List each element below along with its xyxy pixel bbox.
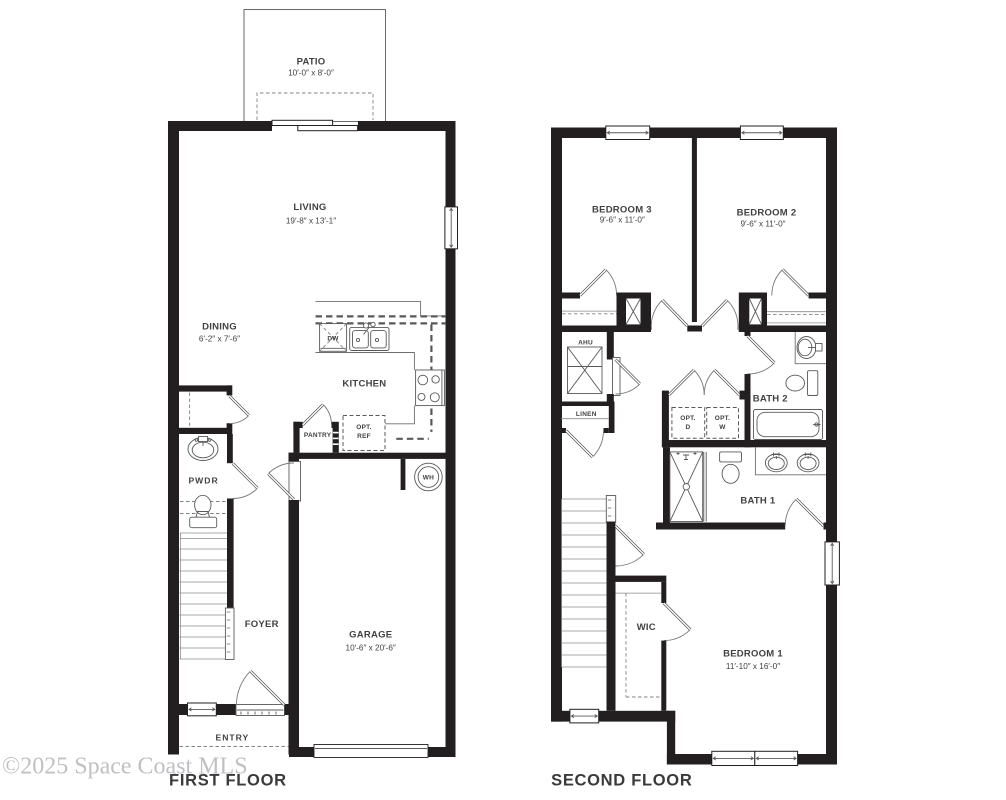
svg-text:OPT.: OPT.	[715, 415, 730, 422]
svg-text:PATIO: PATIO	[297, 57, 326, 68]
svg-text:DINING: DINING	[202, 322, 237, 333]
svg-text:19′-8″ x 13′-1″: 19′-8″ x 13′-1″	[286, 217, 336, 226]
svg-text:LIVING: LIVING	[293, 202, 326, 213]
svg-text:9′-6″ x 11′-0″: 9′-6″ x 11′-0″	[740, 220, 785, 229]
svg-text:DW: DW	[327, 336, 339, 343]
svg-text:BATH 2: BATH 2	[753, 394, 788, 405]
svg-text:WIC: WIC	[637, 622, 656, 633]
svg-text:9′-6″ x 11′-0″: 9′-6″ x 11′-0″	[600, 216, 645, 225]
svg-text:BEDROOM 1: BEDROOM 1	[723, 648, 783, 659]
svg-text:OPT.: OPT.	[680, 415, 695, 422]
svg-text:KITCHEN: KITCHEN	[342, 379, 386, 390]
svg-text:GARAGE: GARAGE	[349, 630, 392, 641]
svg-text:REF: REF	[357, 433, 371, 440]
svg-text:ENTRY: ENTRY	[215, 733, 249, 743]
svg-text:PANTRY: PANTRY	[304, 432, 332, 439]
svg-text:FOYER: FOYER	[245, 619, 279, 630]
svg-text:PWDR: PWDR	[188, 476, 218, 486]
svg-text:6′-2″ x 7′-6″: 6′-2″ x 7′-6″	[199, 335, 240, 344]
svg-text:WH: WH	[423, 475, 434, 482]
svg-text:BATH 1: BATH 1	[740, 496, 776, 507]
svg-text:11′-10″ x 16′-0″: 11′-10″ x 16′-0″	[726, 662, 780, 671]
svg-text:BEDROOM 2: BEDROOM 2	[737, 208, 797, 219]
svg-text:10′-0″ x 8′-0″: 10′-0″ x 8′-0″	[288, 69, 334, 78]
svg-text:BEDROOM 3: BEDROOM 3	[592, 204, 652, 215]
svg-text:AHU: AHU	[578, 340, 593, 347]
svg-text:LINEN: LINEN	[576, 411, 597, 418]
svg-text:D: D	[686, 424, 691, 431]
svg-text:10′-6″ x 20′-6″: 10′-6″ x 20′-6″	[346, 644, 396, 653]
svg-text:OPT.: OPT.	[356, 424, 371, 431]
svg-text:©2025 Space Coast MLS: ©2025 Space Coast MLS	[2, 754, 248, 780]
svg-text:SECOND FLOOR: SECOND FLOOR	[551, 772, 692, 790]
svg-text:W: W	[719, 424, 726, 431]
